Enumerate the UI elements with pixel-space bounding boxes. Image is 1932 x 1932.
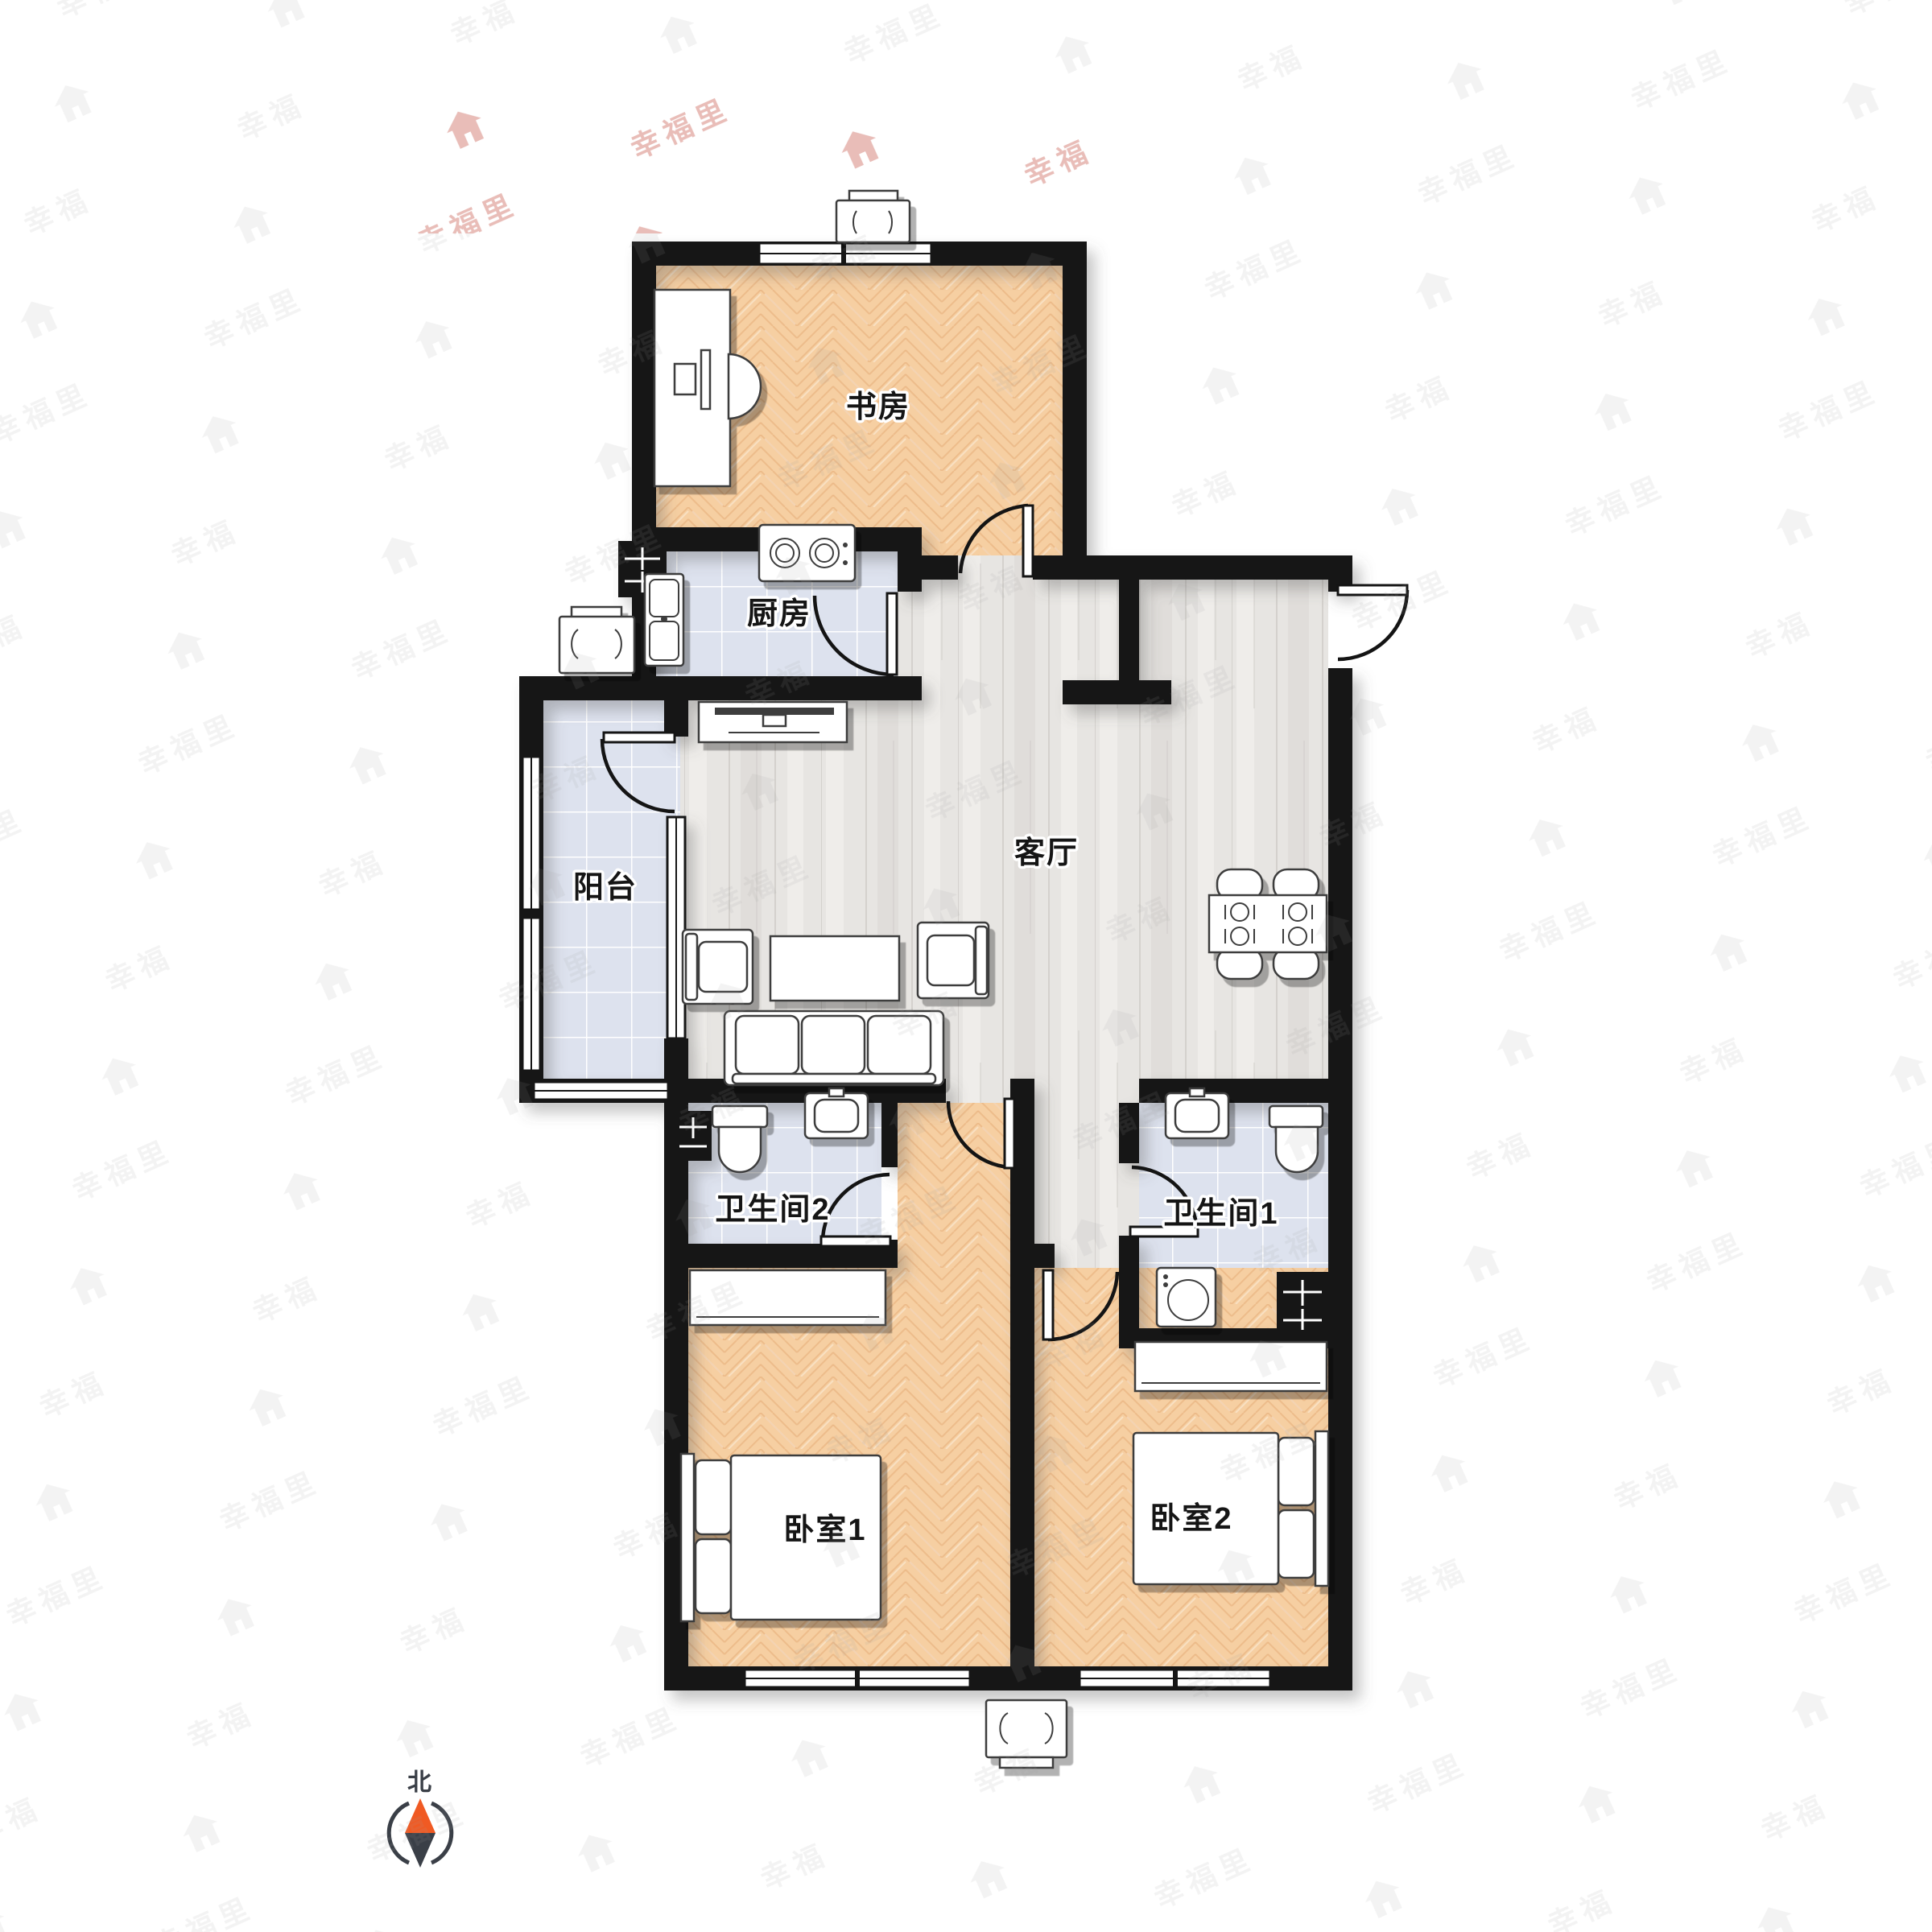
floor-plan: 幸福里 幸福里 幸福里 幸福里: [0, 0, 1932, 1932]
watermark-layer: [0, 0, 1932, 1932]
watermark-red-band: [370, 93, 1224, 233]
